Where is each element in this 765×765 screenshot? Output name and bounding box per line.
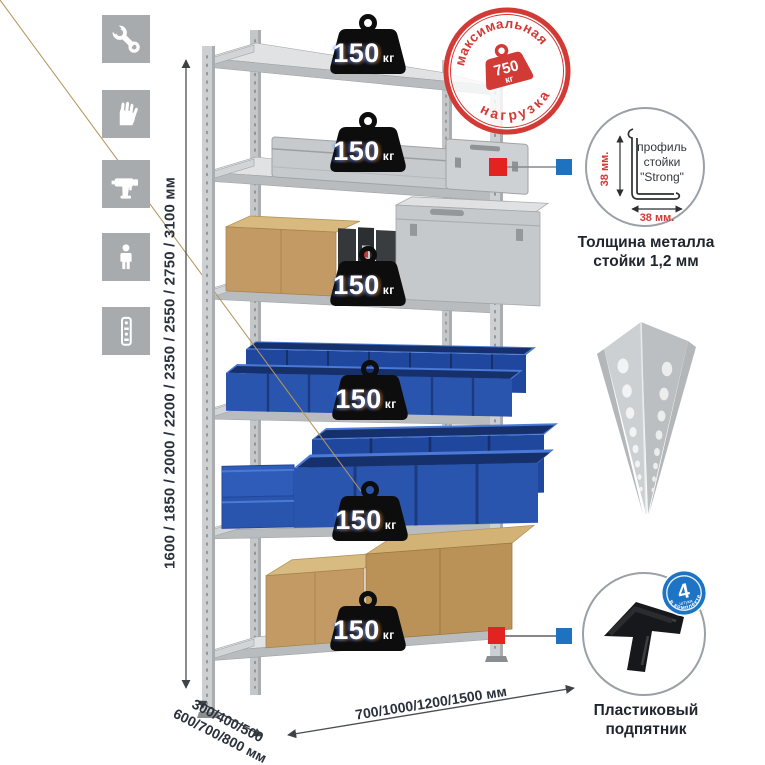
load-unit: кг (385, 397, 397, 411)
rack-post-front-left (197, 46, 220, 718)
icon-tile-rack-post (102, 307, 150, 355)
profile-connector (489, 158, 572, 176)
profile-caption-line2: стойки 1,2 мм (566, 252, 726, 271)
profile-caption-line1: Толщина металла (566, 233, 726, 252)
icon-tile-drill (102, 160, 150, 208)
shelving-product-infographic: 1600 / 1850 / 2000 / 2200 / 2350 / 2550 … (0, 0, 765, 765)
icon-tile-person (102, 233, 150, 281)
load-value: 150 (335, 505, 382, 535)
foot-caption-line1: Пластиковый (566, 701, 726, 720)
profile-line2: стойки (644, 155, 681, 169)
foot-caption-line2: подпятник (566, 720, 726, 739)
quantity-badge: 4 штуки в комплекте (654, 563, 713, 622)
rack-post-icon (111, 316, 141, 346)
shelf6-load-badge: 150кг (318, 591, 418, 655)
post-profile-callout: 38 мм. 38 мм. профиль стойки "Strong" (585, 107, 705, 227)
shelf2-load-badge: 150кг (318, 112, 418, 176)
icon-tile-gloves (102, 90, 150, 138)
shelf1-load-badge: 150кг (318, 14, 418, 78)
load-unit: кг (383, 628, 395, 642)
profile-line3: "Strong" (640, 170, 684, 184)
shelf5-load-badge: 150кг (320, 481, 420, 545)
load-unit: кг (383, 149, 395, 163)
load-unit: кг (383, 283, 395, 297)
shelf3-load-badge: 150кг (318, 246, 418, 310)
load-value: 150 (333, 136, 380, 166)
wrench-icon (111, 24, 141, 54)
load-unit: кг (385, 518, 397, 532)
drill-icon (111, 169, 141, 199)
foot-caption: Пластиковый подпятник (566, 701, 726, 740)
profile-dim-horizontal: 38 мм. (640, 212, 675, 224)
gloves-icon (111, 99, 141, 129)
profile-line1: профиль (637, 140, 687, 154)
person-icon (112, 243, 140, 271)
profile-caption: Толщина металла стойки 1,2 мм (566, 233, 726, 272)
load-value: 150 (333, 615, 380, 645)
shelf4-load-badge: 150кг (320, 360, 420, 424)
profile-dim-vertical: 38 мм. (599, 152, 611, 187)
load-unit: кг (383, 51, 395, 65)
corner-post-illustration (597, 322, 696, 514)
load-value: 150 (335, 384, 382, 414)
icon-tile-wrench (102, 15, 150, 63)
foot-connector (488, 627, 572, 644)
load-value: 150 (333, 270, 380, 300)
load-value: 150 (333, 38, 380, 68)
